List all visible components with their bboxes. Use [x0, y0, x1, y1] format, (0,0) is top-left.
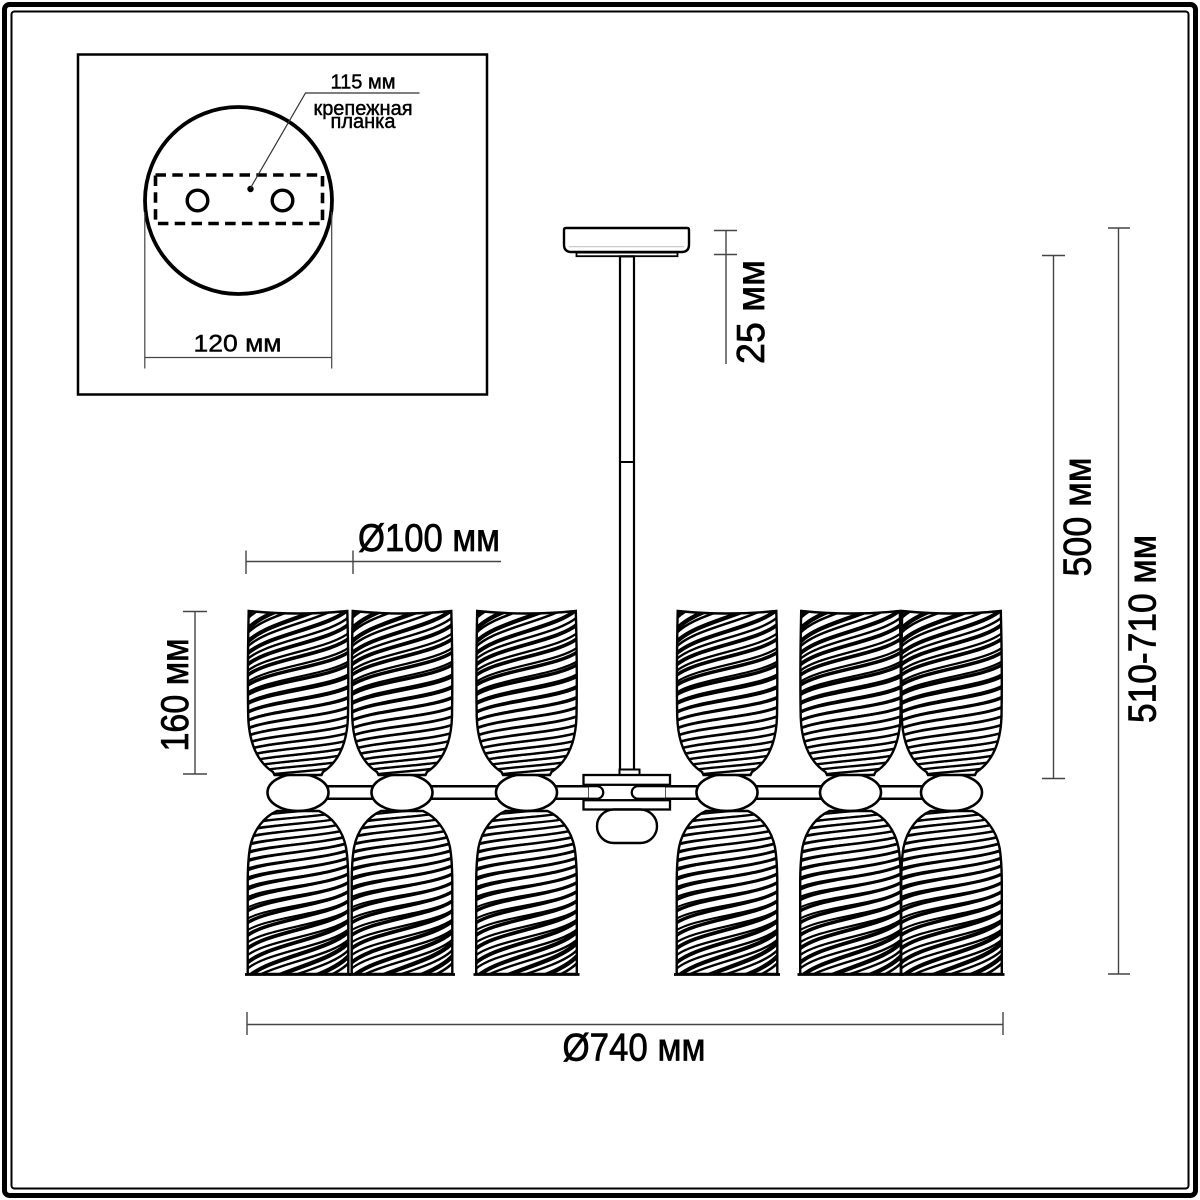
svg-text:планка: планка: [331, 111, 397, 133]
svg-text:500 мм: 500 мм: [1057, 458, 1100, 577]
svg-text:115 мм: 115 мм: [331, 72, 396, 94]
svg-text:120 мм: 120 мм: [194, 331, 282, 358]
svg-text:25 мм: 25 мм: [730, 260, 773, 364]
svg-text:Ø740 мм: Ø740 мм: [563, 1027, 706, 1070]
svg-text:Ø100 мм: Ø100 мм: [358, 517, 500, 560]
svg-text:510-710 мм: 510-710 мм: [1122, 535, 1165, 723]
svg-text:160 мм: 160 мм: [154, 639, 197, 752]
